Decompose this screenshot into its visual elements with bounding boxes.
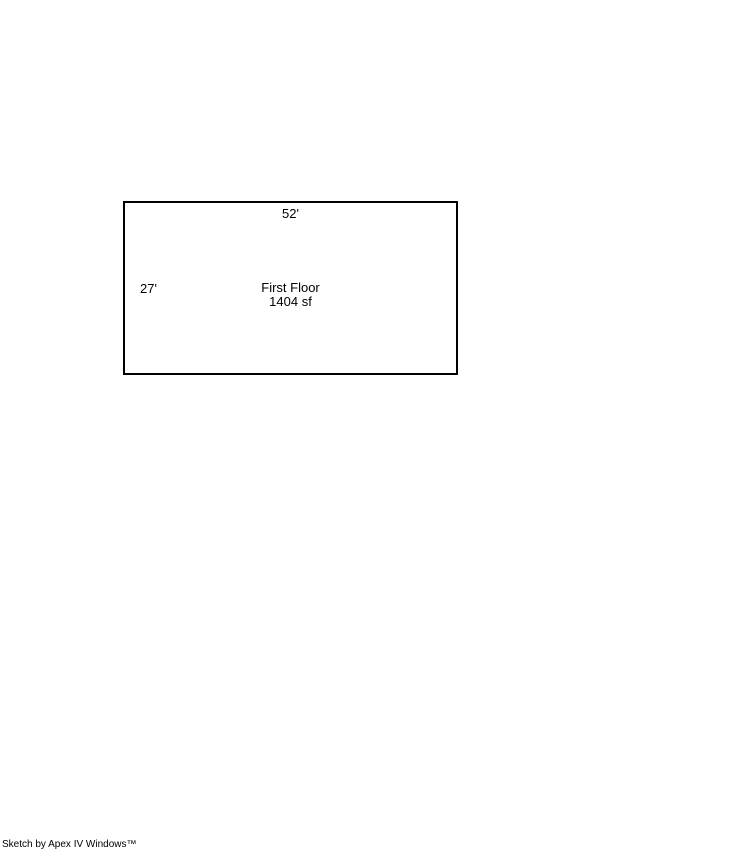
area-label-block: First Floor 1404 sf bbox=[125, 281, 456, 309]
floor-area-label: 1404 sf bbox=[125, 295, 456, 309]
sketch-credit-text: Sketch by Apex IV Windows™ bbox=[2, 839, 137, 851]
dimension-label-width: 52' bbox=[125, 206, 456, 221]
sketch-page: 52' 27' First Floor 1404 sf Sketch by Ap… bbox=[0, 0, 746, 854]
floorplan-outline: 52' 27' First Floor 1404 sf bbox=[123, 201, 458, 375]
floor-name-label: First Floor bbox=[125, 281, 456, 295]
